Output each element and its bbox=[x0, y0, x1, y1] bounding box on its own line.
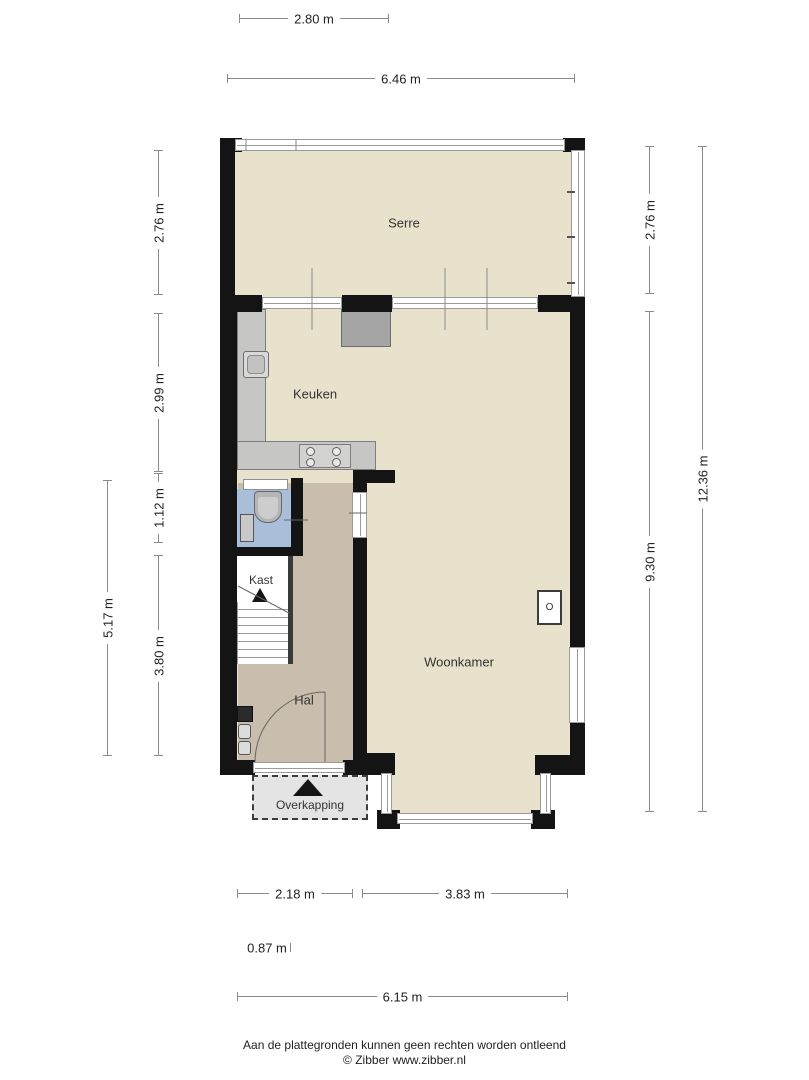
room-label-hal: Hal bbox=[294, 693, 314, 708]
room-label-woonkamer: Woonkamer bbox=[424, 655, 494, 670]
dimension-label: 1.12 m bbox=[152, 482, 167, 534]
dimension-label: 2.76 m bbox=[152, 197, 167, 249]
dimension-left-5: 3.80 m bbox=[154, 555, 163, 756]
footer-disclaimer: Aan de plattegronden kunnen geen rechten… bbox=[0, 1038, 809, 1052]
dimension-label: 6.46 m bbox=[375, 72, 427, 87]
dimension-left-3: 1.12 m bbox=[154, 473, 163, 543]
dimension-left-4: 5.17 m bbox=[103, 480, 112, 756]
dimension-label: 0.87 m bbox=[241, 941, 293, 956]
dimension-right-3: 12.36 m bbox=[698, 146, 707, 812]
dimension-top-2: 6.46 m bbox=[227, 74, 575, 83]
room-label-serre: Serre bbox=[388, 216, 420, 231]
floor-plan-page: Serre Keuken Woonkamer Kast Hal Overkapp… bbox=[0, 0, 809, 1080]
dimension-label: 3.83 m bbox=[439, 887, 491, 902]
dimension-bottom-3: 0.87 m bbox=[243, 943, 291, 952]
dimension-left-1: 2.76 m bbox=[154, 150, 163, 295]
footer-credit: © Zibber www.zibber.nl bbox=[0, 1053, 809, 1067]
dimension-label: 5.17 m bbox=[101, 592, 116, 644]
dimension-label: 9.30 m bbox=[643, 536, 658, 588]
dimension-bottom-1: 2.18 m bbox=[237, 889, 353, 898]
dimension-label: 2.18 m bbox=[269, 887, 321, 902]
stove-marker-box: O bbox=[537, 590, 562, 625]
dimension-bottom-2: 3.83 m bbox=[362, 889, 568, 898]
dimension-bottom-4: 6.15 m bbox=[237, 992, 568, 1001]
room-label-kast: Kast bbox=[249, 573, 273, 587]
dimension-right-2: 9.30 m bbox=[645, 311, 654, 812]
room-label-overkapping: Overkapping bbox=[276, 798, 344, 812]
dimension-label: 2.99 m bbox=[152, 367, 167, 419]
dimension-right-1: 2.76 m bbox=[645, 146, 654, 294]
dimension-label: 3.80 m bbox=[152, 630, 167, 682]
dimension-label: 2.76 m bbox=[643, 194, 658, 246]
room-label-keuken: Keuken bbox=[293, 387, 337, 402]
dimension-label: 12.36 m bbox=[696, 450, 711, 509]
dimension-label: 2.80 m bbox=[288, 12, 340, 27]
dimension-label: 6.15 m bbox=[377, 990, 429, 1005]
stove-marker-label: O bbox=[546, 602, 554, 613]
dimension-left-2: 2.99 m bbox=[154, 313, 163, 472]
plan-annotations-svg bbox=[0, 0, 809, 1080]
dimension-top-1: 2.80 m bbox=[239, 14, 389, 23]
